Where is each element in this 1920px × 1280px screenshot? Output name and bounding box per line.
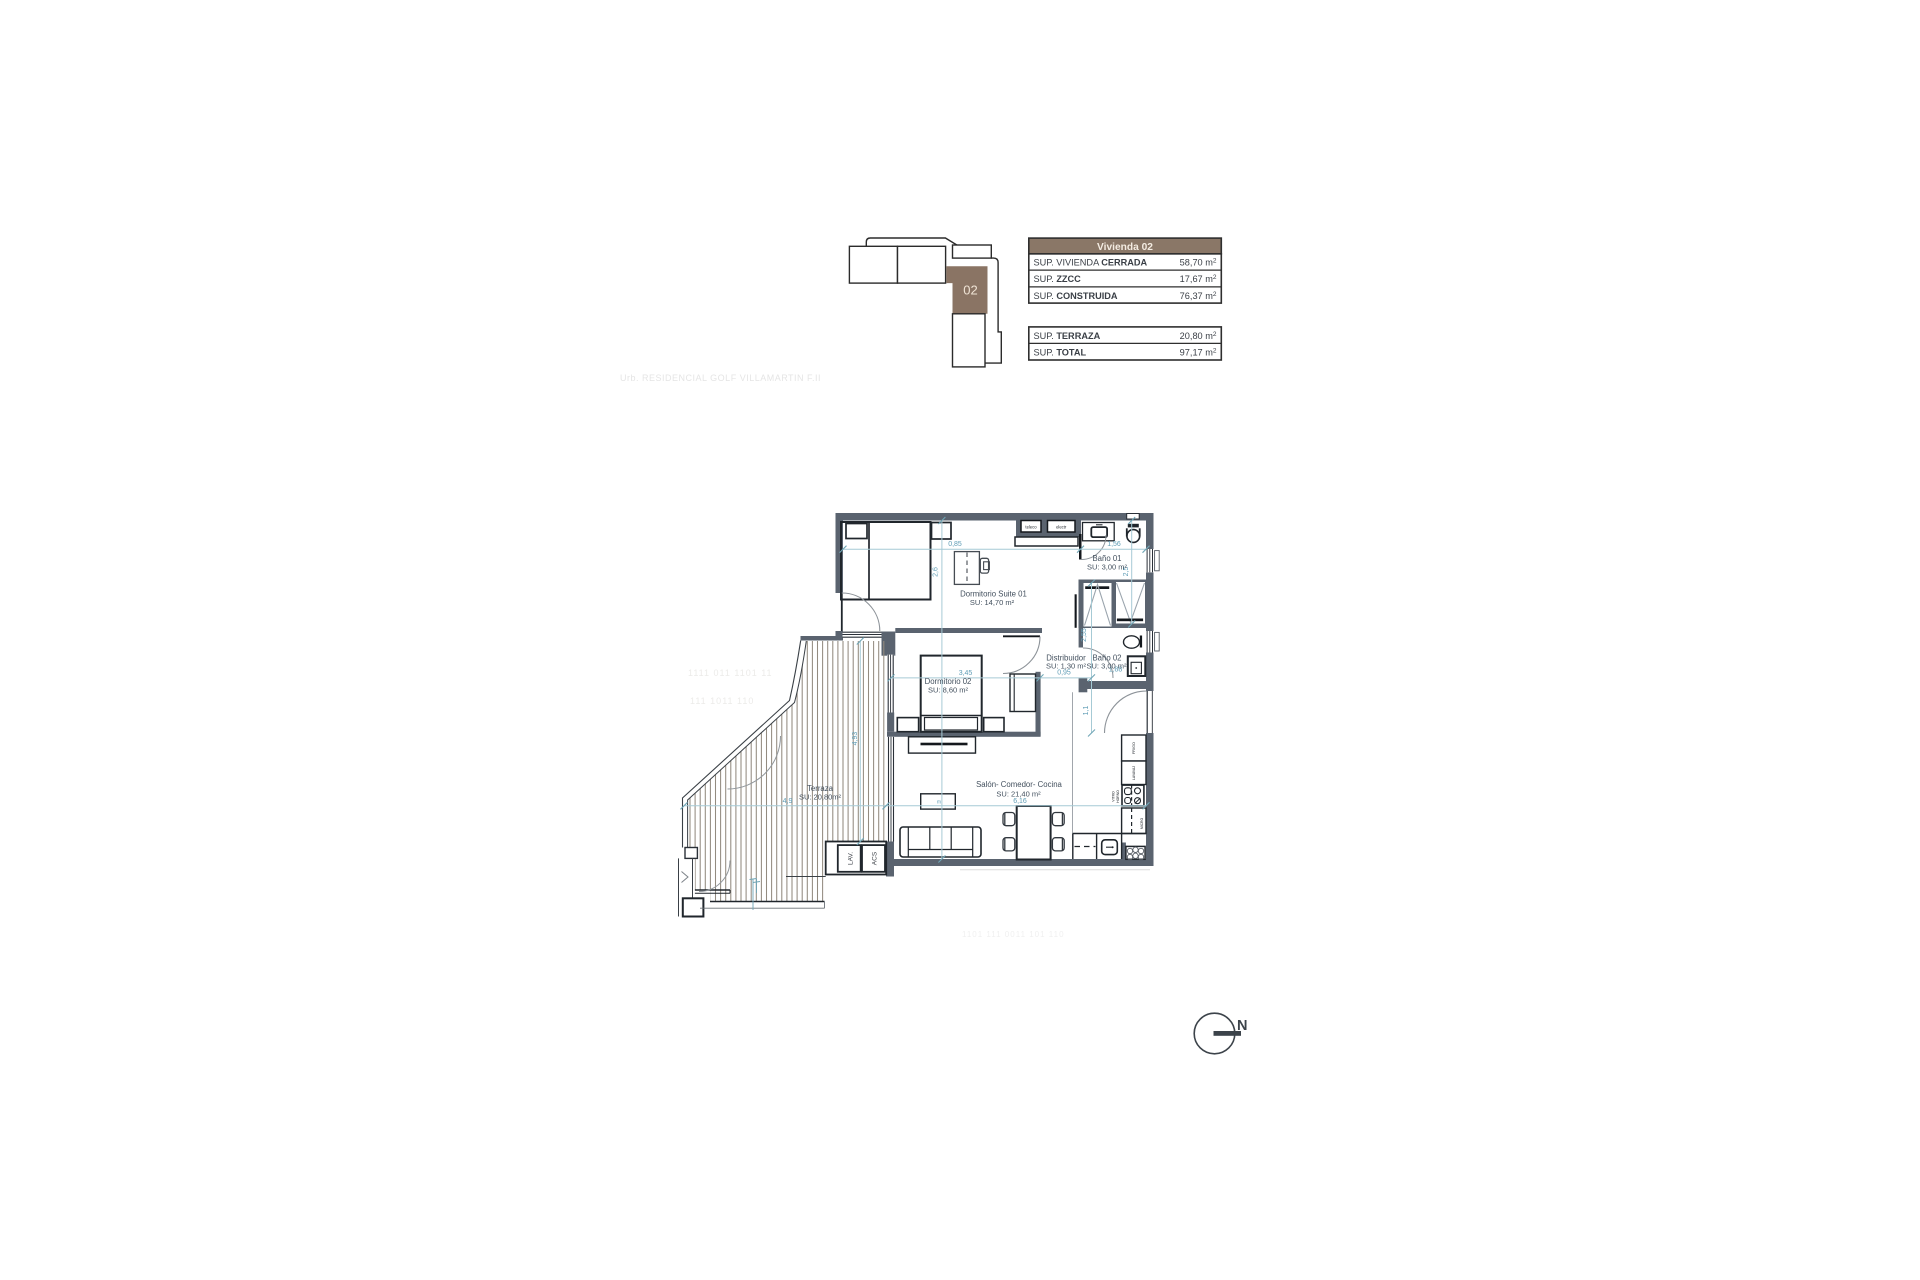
svg-text:111 1011 110: 111 1011 110 <box>690 696 754 706</box>
svg-text:LAVAVAJ: LAVAVAJ <box>1132 766 1136 780</box>
svg-text:1,1: 1,1 <box>1083 706 1090 716</box>
svg-text:6,16: 6,16 <box>1013 798 1027 805</box>
svg-text:SU: 3,00 m²: SU: 3,00 m² <box>1087 562 1128 571</box>
svg-text:0,95: 0,95 <box>1057 670 1071 677</box>
svg-text:58,70 m2: 58,70 m2 <box>1180 258 1217 268</box>
svg-text:1111 011 1101 11: 1111 011 1101 11 <box>688 668 773 678</box>
svg-text:SU: 8,60 m²: SU: 8,60 m² <box>928 686 969 695</box>
svg-text:3,45: 3,45 <box>959 670 973 677</box>
svg-text:SUP. TERRAZA: SUP. TERRAZA <box>1034 331 1101 341</box>
svg-text:1,56: 1,56 <box>1107 541 1121 548</box>
svg-text:0,85: 0,85 <box>948 541 962 548</box>
svg-text:4,93: 4,93 <box>852 732 859 746</box>
svg-text:FRIGO: FRIGO <box>1132 742 1136 754</box>
svg-text:20,80 m2: 20,80 m2 <box>1180 331 1217 341</box>
svg-text:SUP. VIVIENDA CERRADA: SUP. VIVIENDA CERRADA <box>1034 258 1148 268</box>
svg-text:4,9: 4,9 <box>783 798 793 805</box>
svg-text:SUP. ZZCC: SUP. ZZCC <box>1034 274 1082 284</box>
svg-text:Salón- Comedor- Cocina: Salón- Comedor- Cocina <box>976 780 1062 789</box>
svg-text:ACS: ACS <box>872 851 879 865</box>
svg-text:MICRO: MICRO <box>1140 817 1144 829</box>
svg-text:HORNO: HORNO <box>1116 790 1120 803</box>
svg-text:Terraza: Terraza <box>807 784 834 793</box>
svg-text:17,67 m2: 17,67 m2 <box>1180 274 1217 284</box>
svg-text:SU: 20,80m²: SU: 20,80m² <box>799 793 842 802</box>
svg-text:SUP. CONSTRUIDA: SUP. CONSTRUIDA <box>1034 291 1118 301</box>
svg-text:VITRO: VITRO <box>1112 791 1116 802</box>
svg-text:teleco: teleco <box>1025 525 1037 530</box>
svg-text:LAV.: LAV. <box>848 852 855 865</box>
svg-text:2,55: 2,55 <box>1081 628 1088 642</box>
svg-text:SUP. TOTAL: SUP. TOTAL <box>1034 348 1087 358</box>
svg-text:02: 02 <box>963 283 977 298</box>
svg-text:Vivienda 02: Vivienda 02 <box>1097 242 1153 253</box>
svg-text:97,17 m2: 97,17 m2 <box>1180 348 1217 358</box>
svg-text:SU: 1,30 m²: SU: 1,30 m² <box>1046 662 1087 671</box>
svg-text:N: N <box>1237 1018 1247 1034</box>
svg-text:SU: 14,70 m²: SU: 14,70 m² <box>970 598 1015 607</box>
svg-text:2,6: 2,6 <box>933 567 940 577</box>
svg-text:76,37 m2: 76,37 m2 <box>1180 291 1217 301</box>
svg-text:1101 111 0011 101 110: 1101 111 0011 101 110 <box>962 930 1065 939</box>
svg-text:SU: 21,40 m²: SU: 21,40 m² <box>996 790 1041 799</box>
svg-text:m: m <box>937 800 941 806</box>
svg-text:Urb. RESIDENCIAL GOLF VILLAMAR: Urb. RESIDENCIAL GOLF VILLAMARTIN F.II <box>620 373 821 383</box>
svg-text:electr: electr <box>1056 525 1067 530</box>
svg-text:SU: 3,00 m²: SU: 3,00 m² <box>1086 662 1127 671</box>
